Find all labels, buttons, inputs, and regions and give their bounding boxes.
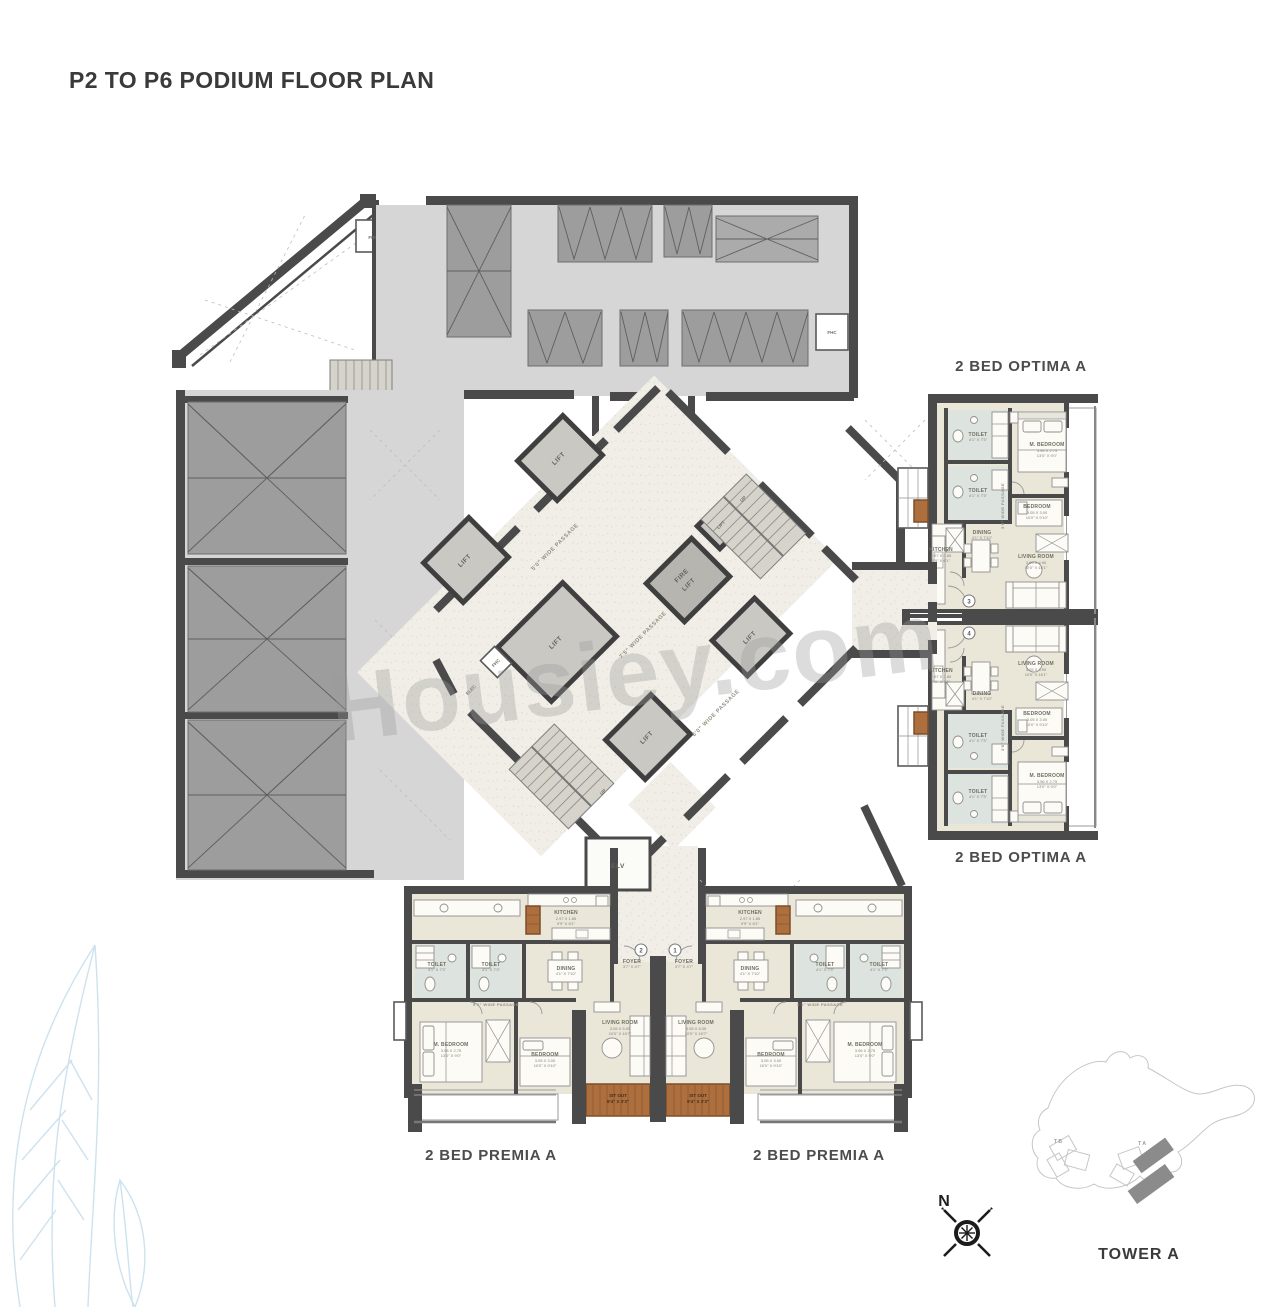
compass-icon [941, 1207, 993, 1256]
room-dim: 4'1" X 7'3" [870, 967, 889, 972]
room-dim: 4'1" X 7'3" [816, 967, 835, 972]
room-dim: 4'1" X 7'3" [969, 437, 988, 442]
page-title: P2 TO P6 PODIUM FLOOR PLAN [69, 67, 434, 93]
site-key-map [1032, 1052, 1254, 1204]
room-dim: 9'4" X 3'3" [687, 1099, 709, 1104]
room-label-sit-out: SIT OUT [609, 1093, 627, 1098]
floor-plan-canvas: P2 TO P6 PODIUM FLOOR PLAN FHC [0, 0, 1280, 1307]
room-dim: 10'0" X 16'1" [1025, 672, 1048, 677]
site-tower-label: TOWER A [1098, 1246, 1180, 1263]
unit-label-premia-right: 2 BED PREMIA A [753, 1147, 885, 1164]
site-key-tower-b: T B [1054, 1139, 1062, 1145]
room-dim: 10'0" X 16'7" [685, 1031, 708, 1036]
passage-label-36: 3'6" WIDE PASSAGE [1000, 483, 1005, 529]
room-dim: 4'1" X 7'3" [969, 493, 988, 498]
room-dim: 13'0" X 9'0" [1037, 784, 1058, 789]
room-label-sit-out: SIT OUT [689, 1093, 707, 1098]
room-dim: 13'0" X 9'0" [441, 1053, 462, 1058]
room-dim: 4'1" X 7'10" [556, 971, 577, 976]
passage-label-51: 5'1" WIDE PASSAGE [473, 1002, 519, 1007]
floor-plan-page: P2 TO P6 PODIUM FLOOR PLAN FHC [0, 0, 1280, 1307]
room-dim: 4'1" X 7'3" [428, 967, 447, 972]
room-dim: 10'0" X 16'1" [1025, 565, 1048, 570]
room-dim: 3'7" X 4'7" [623, 964, 642, 969]
passage-label-51: 5'1" WIDE PASSAGE [797, 1002, 843, 1007]
leaf-decoration-icon [13, 945, 145, 1307]
room-dim: 9'9" X 6'1" [557, 921, 576, 926]
room-dim: 4'1" X 7'10" [972, 535, 993, 540]
room-dim: 4'1" X 7'3" [969, 794, 988, 799]
room-dim: 9'9" X 6'1" [932, 558, 951, 563]
room-dim: 9'9" X 6'1" [741, 921, 760, 926]
compass-north-label: N [938, 1193, 950, 1210]
unit-label-optima-top: 2 BED OPTIMA A [955, 358, 1087, 375]
elv-label: ELV [611, 863, 625, 870]
room-dim: 4'1" X 7'3" [969, 738, 988, 743]
room-dim: 10'0" X 16'7" [609, 1031, 632, 1036]
site-key-tower-a: T A [1138, 1141, 1146, 1147]
room-dim: 3'7" X 4'7" [675, 964, 694, 969]
room-dim: 13'0" X 9'0" [855, 1053, 876, 1058]
room-dim: 9'4" X 3'3" [607, 1099, 629, 1104]
fhc-label-parking: FHC [827, 330, 837, 335]
room-dim: 4'1" X 7'10" [740, 971, 761, 976]
room-dim: 10'0" X 9'10" [1026, 722, 1049, 727]
passage-label-36: 3'6" WIDE PASSAGE [1000, 705, 1005, 751]
room-dim: 10'0" X 9'10" [760, 1063, 783, 1068]
room-dim: 4'1" X 7'10" [972, 696, 993, 701]
unit-label-optima-bottom: 2 BED OPTIMA A [955, 849, 1087, 866]
room-dim: 10'0" X 9'10" [1026, 515, 1049, 520]
room-dim: 4'1" X 7'3" [482, 967, 501, 972]
unit-label-premia-left: 2 BED PREMIA A [425, 1147, 557, 1164]
room-dim: 13'0" X 9'0" [1037, 453, 1058, 458]
room-dim: 10'0" X 9'10" [534, 1063, 557, 1068]
